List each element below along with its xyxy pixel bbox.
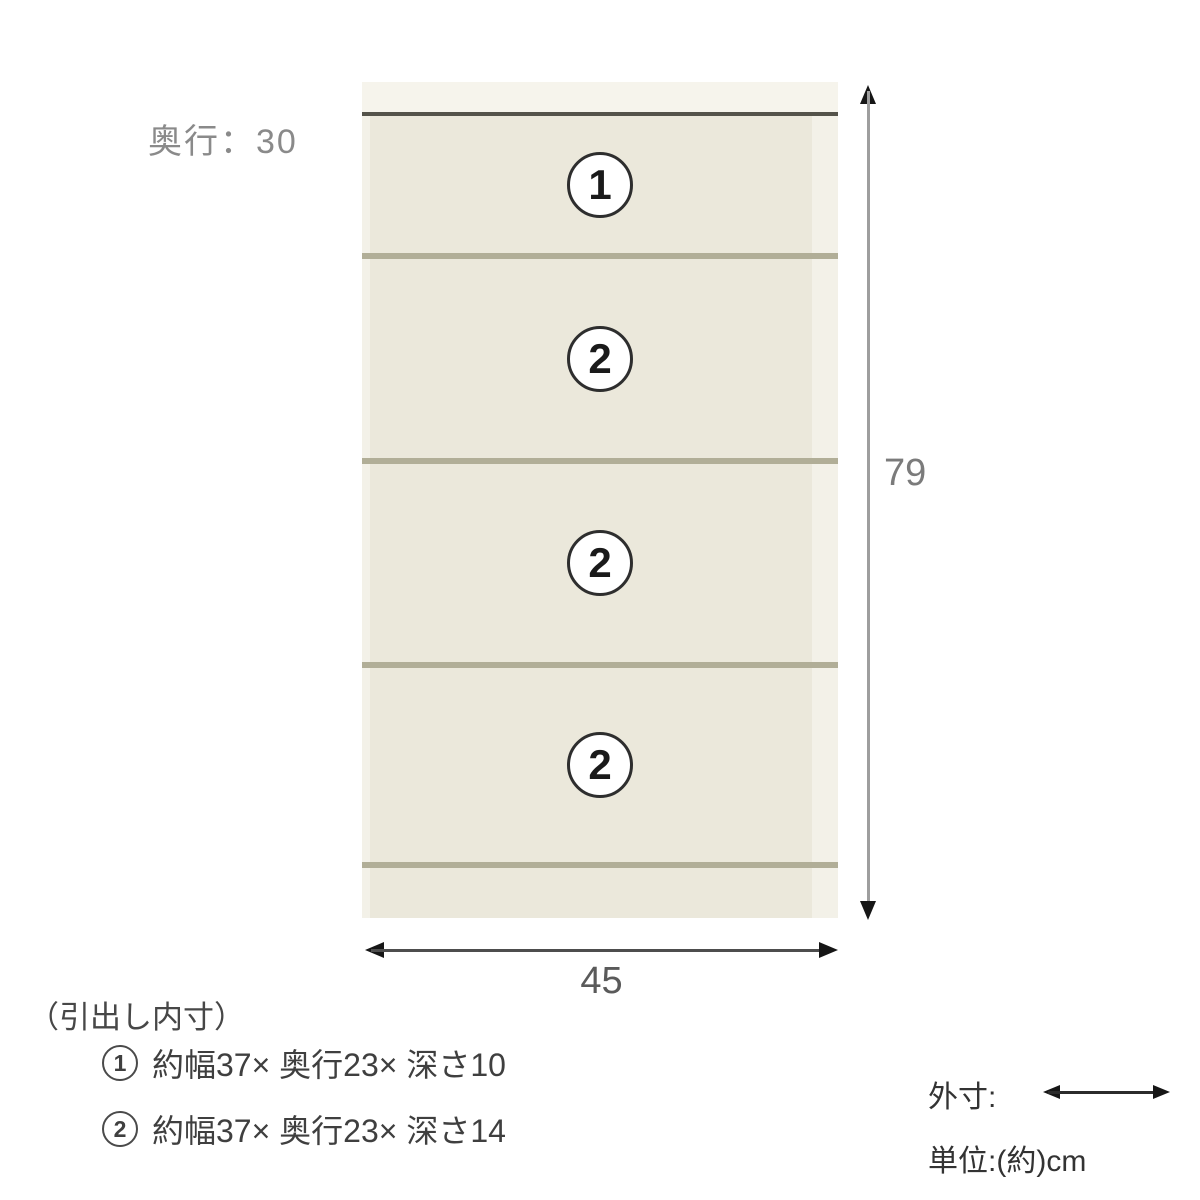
dimension-line — [371, 949, 832, 952]
cabinet-top-panel — [362, 82, 838, 112]
height-value: 79 — [884, 452, 926, 495]
drawer-divider — [362, 253, 838, 259]
arrow-down-icon — [860, 901, 876, 920]
arrow-right-icon — [819, 942, 838, 958]
outer-dimension-legend-label: 外寸: — [928, 1072, 996, 1116]
inner-dimension-text-2: 約幅37× 奥行23× 深さ14 — [152, 1106, 506, 1152]
product-dimension-diagram: 奥行：30 1 2 2 2 79 45 （引出し内寸） 1 約幅37× 奥行23… — [0, 0, 1200, 1200]
double-arrow-icon — [1043, 1084, 1170, 1100]
dimension-line — [867, 91, 870, 914]
width-dimension-arrow — [365, 942, 838, 958]
cabinet-left-side — [362, 116, 370, 918]
drawer-2-number-badge: 2 — [567, 326, 633, 392]
drawer-divider — [362, 458, 838, 464]
drawer-divider — [362, 862, 838, 868]
cabinet-right-side — [812, 116, 838, 918]
inner-dimension-item-1: 1 約幅37× 奥行23× 深さ10 — [102, 1040, 506, 1086]
drawer-4-number-badge: 2 — [567, 732, 633, 798]
arrow-right-icon — [1153, 1085, 1170, 1099]
circled-number-2: 2 — [102, 1111, 138, 1147]
chest-of-drawers: 1 2 2 2 — [362, 82, 838, 918]
unit-note-label: 単位:(約)cm — [928, 1136, 1086, 1180]
height-dimension-arrow — [860, 85, 876, 920]
width-value: 45 — [365, 960, 838, 1003]
drawer-3-number-badge: 2 — [567, 530, 633, 596]
inner-dimension-item-2: 2 約幅37× 奥行23× 深さ14 — [102, 1106, 506, 1152]
circled-number-1: 1 — [102, 1045, 138, 1081]
drawer-1-number-badge: 1 — [567, 152, 633, 218]
depth-dimension-label: 奥行：30 — [148, 114, 298, 163]
inner-dimensions-title: （引出し内寸） — [28, 992, 245, 1037]
legend-line — [1048, 1091, 1165, 1094]
cabinet-top-edge — [362, 112, 838, 116]
drawer-divider — [362, 662, 838, 668]
inner-dimension-text-1: 約幅37× 奥行23× 深さ10 — [152, 1040, 506, 1086]
